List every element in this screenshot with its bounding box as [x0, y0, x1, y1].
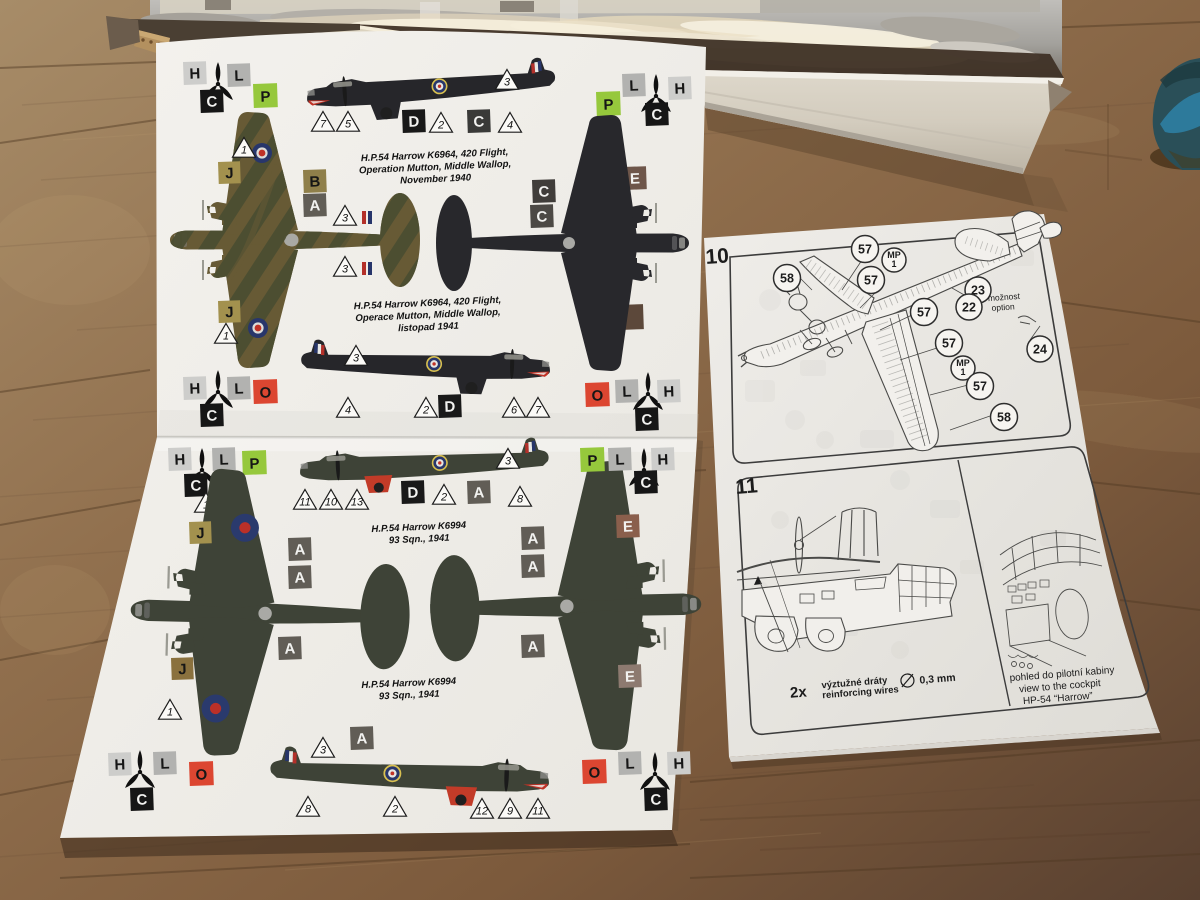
svg-text:A: A: [284, 640, 296, 657]
svg-text:7: 7: [535, 405, 542, 417]
svg-text:A: A: [527, 558, 539, 575]
svg-text:C: C: [640, 474, 652, 491]
svg-text:O: O: [259, 384, 272, 401]
svg-text:L: L: [234, 67, 244, 84]
svg-text:L: L: [629, 77, 639, 94]
svg-text:J: J: [225, 304, 234, 321]
svg-text:10: 10: [325, 497, 338, 509]
svg-text:J: J: [178, 661, 187, 678]
svg-text:H: H: [174, 451, 185, 468]
svg-text:57: 57: [864, 274, 878, 288]
svg-text:L: L: [160, 755, 170, 772]
svg-text:58: 58: [780, 272, 794, 286]
svg-text:11: 11: [532, 806, 543, 818]
svg-text:C: C: [536, 208, 548, 225]
svg-text:A: A: [294, 541, 306, 558]
svg-text:O: O: [195, 766, 208, 783]
svg-text:H: H: [663, 383, 674, 400]
svg-text:A: A: [309, 197, 321, 214]
svg-text:2: 2: [422, 405, 429, 417]
svg-text:C: C: [641, 411, 653, 428]
svg-text:P: P: [587, 452, 598, 469]
svg-text:H: H: [657, 451, 668, 468]
svg-text:6: 6: [511, 405, 518, 417]
svg-text:option: option: [991, 301, 1015, 313]
svg-text:3: 3: [320, 745, 327, 757]
svg-text:24: 24: [1033, 343, 1047, 357]
svg-text:3: 3: [505, 456, 512, 468]
svg-text:1: 1: [891, 259, 896, 269]
svg-text:C: C: [206, 93, 218, 110]
svg-text:C: C: [190, 477, 202, 494]
svg-text:57: 57: [973, 380, 987, 394]
svg-text:C: C: [650, 791, 662, 808]
svg-text:3: 3: [353, 353, 360, 365]
svg-text:57: 57: [858, 243, 872, 257]
svg-text:3: 3: [342, 264, 349, 276]
svg-text:2: 2: [440, 492, 447, 504]
svg-text:D: D: [408, 113, 420, 130]
svg-text:1: 1: [223, 331, 229, 343]
svg-text:10: 10: [705, 244, 730, 269]
svg-text:L: L: [615, 451, 625, 468]
svg-text:L: L: [234, 380, 244, 397]
svg-text:1: 1: [241, 145, 247, 157]
svg-text:P: P: [603, 96, 614, 113]
svg-text:1: 1: [960, 367, 965, 377]
svg-text:J: J: [196, 525, 205, 542]
svg-text:13: 13: [351, 497, 364, 509]
svg-text:A: A: [294, 569, 306, 586]
svg-text:A: A: [473, 484, 485, 501]
svg-text:C: C: [473, 113, 485, 130]
svg-text:22: 22: [962, 301, 976, 315]
svg-text:L: L: [219, 451, 229, 468]
svg-text:L: L: [625, 755, 635, 772]
svg-text:4: 4: [507, 120, 513, 132]
svg-text:H: H: [674, 80, 685, 97]
svg-text:H: H: [673, 755, 684, 772]
svg-text:58: 58: [997, 411, 1011, 425]
svg-text:E: E: [623, 518, 634, 535]
svg-text:8: 8: [305, 804, 312, 816]
svg-text:D: D: [444, 398, 456, 415]
svg-text:2: 2: [437, 120, 444, 132]
svg-text:57: 57: [917, 306, 931, 320]
svg-text:2x: 2x: [789, 683, 808, 701]
svg-text:E: E: [630, 170, 641, 187]
svg-text:3: 3: [504, 77, 511, 89]
svg-text:2: 2: [391, 804, 398, 816]
svg-text:7: 7: [320, 119, 327, 131]
svg-text:A: A: [356, 730, 368, 747]
svg-text:3: 3: [342, 213, 349, 225]
svg-text:O: O: [588, 764, 601, 781]
svg-text:57: 57: [942, 337, 956, 351]
svg-text:C: C: [136, 791, 148, 808]
svg-text:C: C: [206, 407, 218, 424]
svg-text:C: C: [651, 106, 663, 123]
svg-text:O: O: [591, 387, 604, 404]
svg-text:9: 9: [507, 806, 513, 818]
svg-text:A: A: [527, 530, 539, 547]
svg-text:1: 1: [167, 707, 173, 719]
svg-text:11: 11: [299, 497, 310, 509]
svg-text:H: H: [189, 380, 200, 397]
svg-text:5: 5: [345, 119, 352, 131]
svg-text:B: B: [309, 173, 321, 190]
svg-text:P: P: [260, 88, 271, 105]
svg-text:12: 12: [476, 806, 488, 818]
svg-text:H: H: [189, 65, 200, 82]
svg-text:D: D: [407, 484, 419, 501]
svg-text:J: J: [225, 165, 234, 182]
svg-text:A: A: [527, 638, 539, 655]
svg-text:E: E: [625, 668, 636, 685]
svg-text:11: 11: [735, 474, 759, 499]
svg-text:L: L: [622, 383, 632, 400]
svg-text:8: 8: [517, 494, 524, 506]
svg-text:H: H: [114, 756, 125, 773]
svg-text:4: 4: [345, 405, 351, 417]
svg-text:P: P: [249, 455, 260, 472]
svg-text:C: C: [538, 183, 550, 200]
